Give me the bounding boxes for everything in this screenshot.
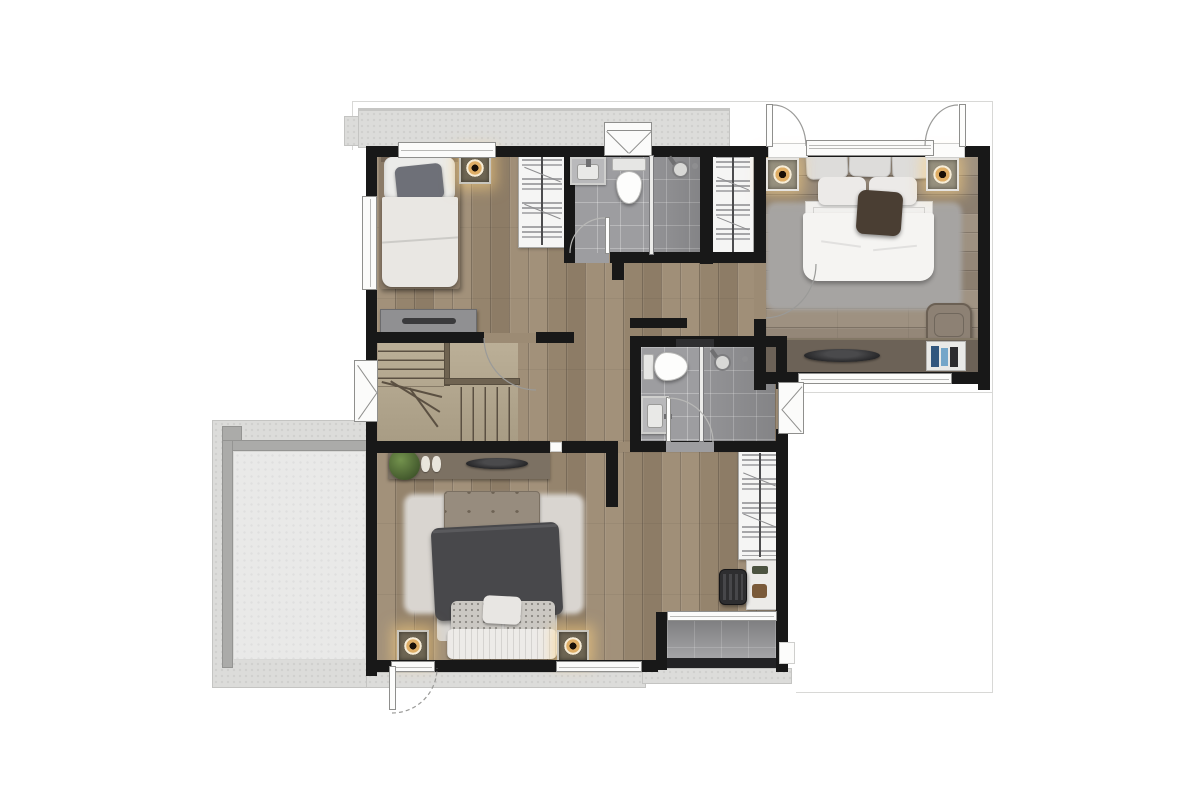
door-swing-arc bbox=[668, 398, 714, 443]
ceiling-spotlight bbox=[557, 630, 589, 662]
spotlight-lens bbox=[564, 637, 582, 655]
window-v-line bbox=[629, 131, 652, 154]
door-opening bbox=[618, 442, 630, 452]
slipper bbox=[421, 456, 430, 472]
balcony-drain-box bbox=[779, 642, 795, 664]
stair-treads-upper bbox=[378, 343, 444, 387]
window bbox=[362, 196, 377, 290]
ribbed-pillow bbox=[447, 629, 557, 659]
window-line bbox=[809, 148, 931, 149]
desk-item bbox=[752, 584, 767, 598]
terrace-parapet-left bbox=[222, 440, 233, 668]
awning-window-icon bbox=[354, 360, 378, 422]
window-v-line bbox=[357, 365, 377, 393]
balcony-floor bbox=[667, 620, 776, 658]
washbasin-bowl bbox=[647, 404, 663, 428]
spotlight-lens bbox=[466, 159, 484, 177]
wardrobe bbox=[712, 152, 754, 260]
washbasin-tap bbox=[586, 159, 591, 167]
balcony-edge bbox=[656, 658, 787, 668]
wall bbox=[612, 252, 624, 280]
spotlight-lens bbox=[773, 165, 792, 184]
window-line bbox=[801, 379, 949, 380]
plant bbox=[389, 449, 420, 480]
door-leaf bbox=[959, 104, 966, 147]
bathroom-shelf bbox=[676, 339, 714, 347]
ceiling-spotlight bbox=[766, 158, 799, 191]
bookshelf bbox=[926, 341, 966, 371]
wall bbox=[610, 252, 713, 263]
ceiling-spotlight bbox=[926, 158, 959, 191]
floor-plan bbox=[0, 0, 1200, 800]
door-swing-arc bbox=[766, 264, 817, 319]
wall bbox=[366, 441, 550, 453]
toilet-tank bbox=[612, 158, 646, 171]
toilet-bowl bbox=[616, 171, 642, 204]
window bbox=[556, 661, 642, 672]
decor-bowl bbox=[466, 458, 528, 469]
wall bbox=[700, 146, 713, 264]
wardrobe-rail bbox=[759, 453, 761, 557]
window-v-line bbox=[782, 386, 802, 409]
terrace-parapet-top bbox=[222, 440, 376, 451]
window bbox=[398, 142, 496, 158]
decor-bowl bbox=[804, 349, 880, 362]
window-v-line bbox=[606, 131, 629, 154]
dresser-handle bbox=[402, 318, 456, 324]
desk-item bbox=[752, 566, 768, 574]
chair-seat-line bbox=[934, 313, 964, 337]
door-leaf bbox=[766, 104, 773, 147]
duvet-fold bbox=[382, 236, 458, 243]
window bbox=[806, 140, 934, 156]
spotlight-lens bbox=[933, 165, 952, 184]
book bbox=[931, 346, 939, 367]
eaves-outline-bottom bbox=[796, 692, 993, 693]
window bbox=[667, 611, 777, 621]
office-chair bbox=[719, 569, 747, 605]
toilet-tank bbox=[643, 354, 654, 380]
door-swing-arc bbox=[925, 104, 959, 147]
eaves-outline-top bbox=[352, 101, 993, 102]
washbasin bbox=[570, 157, 606, 185]
wall bbox=[978, 146, 990, 390]
wall bbox=[630, 336, 641, 452]
washbasin bbox=[641, 396, 669, 434]
eaves-outline-right bbox=[992, 101, 993, 693]
door-swing-arc-dashed bbox=[392, 668, 438, 714]
window bbox=[798, 373, 952, 384]
slipper bbox=[432, 456, 441, 472]
toilet-bowl bbox=[654, 352, 688, 381]
wall bbox=[776, 429, 788, 672]
duvet-fold bbox=[873, 245, 917, 252]
window-line bbox=[559, 667, 639, 668]
terrace-floor bbox=[233, 451, 366, 660]
toilet bbox=[643, 351, 691, 383]
awning-window-icon bbox=[778, 382, 804, 434]
shower-valve bbox=[742, 356, 748, 362]
wall bbox=[536, 332, 574, 343]
chair-slats bbox=[723, 574, 743, 600]
book bbox=[941, 348, 948, 366]
door-swing-arc bbox=[773, 104, 807, 147]
accent-pillow bbox=[856, 189, 904, 236]
duvet-fold bbox=[821, 240, 861, 248]
bathroom-niche-ledge bbox=[630, 318, 687, 328]
wall-slit bbox=[550, 442, 562, 452]
door-opening bbox=[754, 263, 766, 319]
door-opening bbox=[666, 442, 714, 452]
awning-window-icon bbox=[604, 122, 652, 156]
wall bbox=[366, 332, 484, 343]
window-sash-line bbox=[607, 130, 651, 131]
single-bed-duvet bbox=[382, 197, 458, 287]
window-line bbox=[809, 145, 931, 146]
small-pillow bbox=[482, 595, 521, 625]
wall bbox=[606, 441, 618, 507]
spotlight-lens bbox=[404, 637, 422, 655]
shower-glass-partition bbox=[650, 156, 653, 254]
wall bbox=[656, 612, 667, 670]
window-line bbox=[670, 616, 774, 617]
wardrobe-rail bbox=[732, 155, 734, 257]
toilet bbox=[610, 157, 648, 205]
book bbox=[950, 347, 958, 367]
window-v-line bbox=[358, 392, 378, 420]
ceiling-spotlight bbox=[397, 630, 429, 662]
eaves-outline-under-master bbox=[790, 392, 992, 393]
stair-treads-lower bbox=[450, 387, 518, 443]
window-v-line bbox=[781, 409, 801, 432]
wall bbox=[562, 441, 606, 453]
shower-valve bbox=[692, 163, 698, 169]
door-swing-arc bbox=[570, 218, 606, 254]
window-line bbox=[401, 150, 493, 151]
window-line bbox=[370, 199, 371, 287]
wardrobe bbox=[518, 150, 566, 248]
door-swing-arc bbox=[484, 338, 537, 391]
ledge-below-balcony bbox=[642, 668, 792, 684]
wardrobe-rail bbox=[541, 153, 543, 245]
door-opening bbox=[575, 253, 609, 263]
